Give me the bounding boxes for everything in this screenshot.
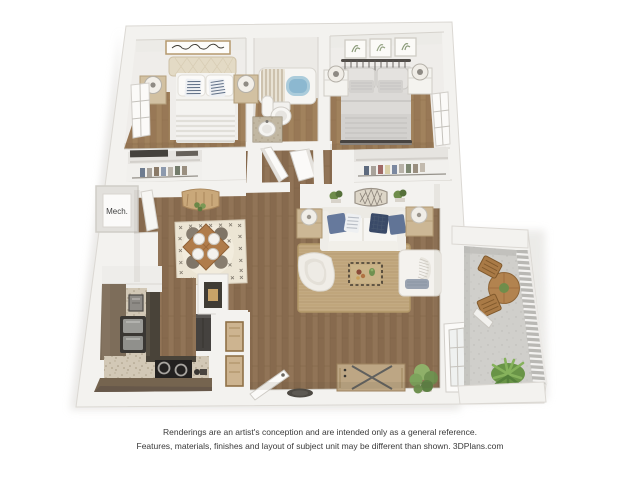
svg-text:Mech.: Mech. (106, 207, 128, 216)
